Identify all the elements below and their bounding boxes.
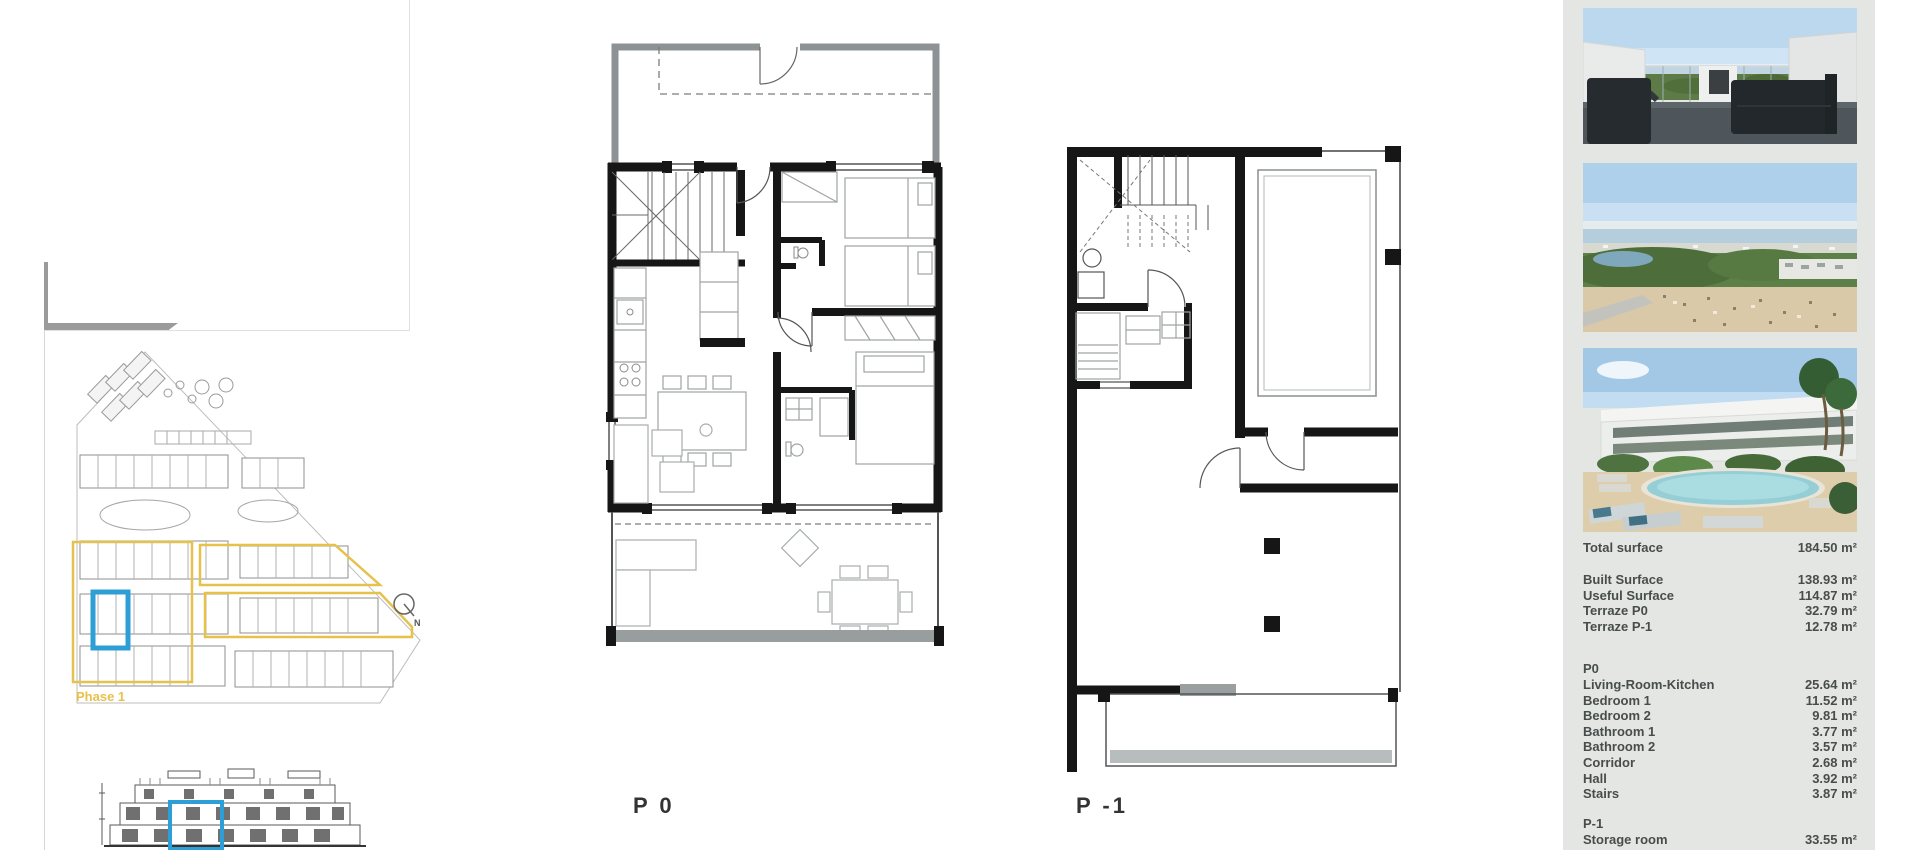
- p0-section-header: P0: [1583, 661, 1857, 677]
- table-row: Bathroom 1 3.77 m²: [1583, 724, 1857, 740]
- photo-aerial-view: [1583, 163, 1857, 332]
- sheet-shadow: [44, 323, 178, 330]
- table-row: Built Surface 138.93 m²: [1583, 572, 1857, 588]
- sheet-shadow: [44, 262, 48, 330]
- elevation-windows: [122, 789, 344, 842]
- floor-plan-p-1: [1055, 140, 1415, 785]
- row-label: Living-Room-Kitchen: [1583, 677, 1714, 693]
- row-label: Useful Surface: [1583, 588, 1674, 604]
- table-row: Terraze P0 32.79 m²: [1583, 603, 1857, 619]
- surface-total-label: Total surface: [1583, 540, 1663, 556]
- surface-total-value: 184.50 m²: [1798, 540, 1857, 556]
- row-value: 3.92 m²: [1812, 771, 1857, 787]
- site-buildings-cluster: [88, 351, 165, 421]
- p0-bedroom2: [845, 316, 935, 464]
- row-value: 11.52 m²: [1806, 693, 1857, 709]
- table-row: Living-Room-Kitchen 25.64 m²: [1583, 677, 1857, 693]
- row-label: Terraze P0: [1583, 603, 1648, 619]
- p0-bathroom1: [779, 240, 822, 266]
- table-row: Useful Surface 114.87 m²: [1583, 588, 1857, 604]
- row-value: 2.68 m²: [1812, 755, 1857, 771]
- phase-label: Phase 1: [76, 689, 125, 704]
- row-label: Terraze P-1: [1583, 619, 1652, 635]
- row-value: 9.81 m²: [1812, 708, 1857, 724]
- p1-rooms: Storage room 33.55 m²: [1583, 832, 1857, 848]
- row-value: 12.78 m²: [1805, 619, 1857, 635]
- plan-label-p-1: P -1: [1076, 793, 1128, 819]
- row-label: Built Surface: [1583, 572, 1663, 588]
- row-label: Bedroom 2: [1583, 708, 1651, 724]
- row-value: 114.87 m²: [1798, 588, 1857, 604]
- p1-bathroom: [1076, 312, 1190, 379]
- row-label: Corridor: [1583, 755, 1635, 771]
- table-row: Stairs 3.87 m²: [1583, 786, 1857, 802]
- north-label: N: [414, 618, 421, 628]
- row-label: Hall: [1583, 771, 1607, 787]
- row-value: 3.87 m²: [1812, 786, 1857, 802]
- row-value: 3.57 m²: [1812, 739, 1857, 755]
- p0-terrace-furniture: [616, 530, 912, 638]
- table-row: Terraze P-1 12.78 m²: [1583, 619, 1857, 635]
- surface-summary: Built Surface 138.93 m² Useful Surface 1…: [1583, 572, 1857, 634]
- row-value: 25.64 m²: [1805, 677, 1857, 693]
- info-sidebar: Total surface 184.50 m² Built Surface 13…: [1563, 0, 1875, 850]
- table-row: Bedroom 1 11.52 m²: [1583, 693, 1857, 709]
- table-row: Bedroom 2 9.81 m²: [1583, 708, 1857, 724]
- row-value: 32.79 m²: [1805, 603, 1857, 619]
- top-sheet: [44, 0, 410, 331]
- p1-walls: [1072, 147, 1322, 772]
- p0-rooms: Living-Room-Kitchen 25.64 m² Bedroom 1 1…: [1583, 677, 1857, 802]
- site-building-rows: [80, 455, 393, 687]
- row-label: Bathroom 2: [1583, 739, 1655, 755]
- row-label: Storage room: [1583, 832, 1668, 848]
- row-value: 138.93 m²: [1798, 572, 1857, 588]
- row-label: Stairs: [1583, 786, 1619, 802]
- photo-terrace-view: [1583, 8, 1857, 144]
- building-elevation: [60, 763, 410, 850]
- p0-stairs: [612, 172, 724, 260]
- row-value: 33.55 m²: [1805, 832, 1857, 848]
- p1-section-header: P-1: [1583, 816, 1857, 832]
- table-row: Hall 3.92 m²: [1583, 771, 1857, 787]
- plan-label-p0: P 0: [633, 793, 675, 819]
- table-row: Bathroom 2 3.57 m²: [1583, 739, 1857, 755]
- row-label: Bedroom 1: [1583, 693, 1651, 709]
- site-plan: Phase 1 N: [50, 335, 430, 705]
- surface-total-row: Total surface 184.50 m²: [1583, 540, 1857, 556]
- brochure-page: Phase 1 N: [0, 0, 1920, 850]
- photo-pool-view: [1583, 348, 1857, 532]
- floor-plan-p0: [595, 30, 955, 820]
- table-row: Storage room 33.55 m²: [1583, 832, 1857, 848]
- row-label: Bathroom 1: [1583, 724, 1655, 740]
- table-row: Corridor 2.68 m²: [1583, 755, 1857, 771]
- row-value: 3.77 m²: [1812, 724, 1857, 740]
